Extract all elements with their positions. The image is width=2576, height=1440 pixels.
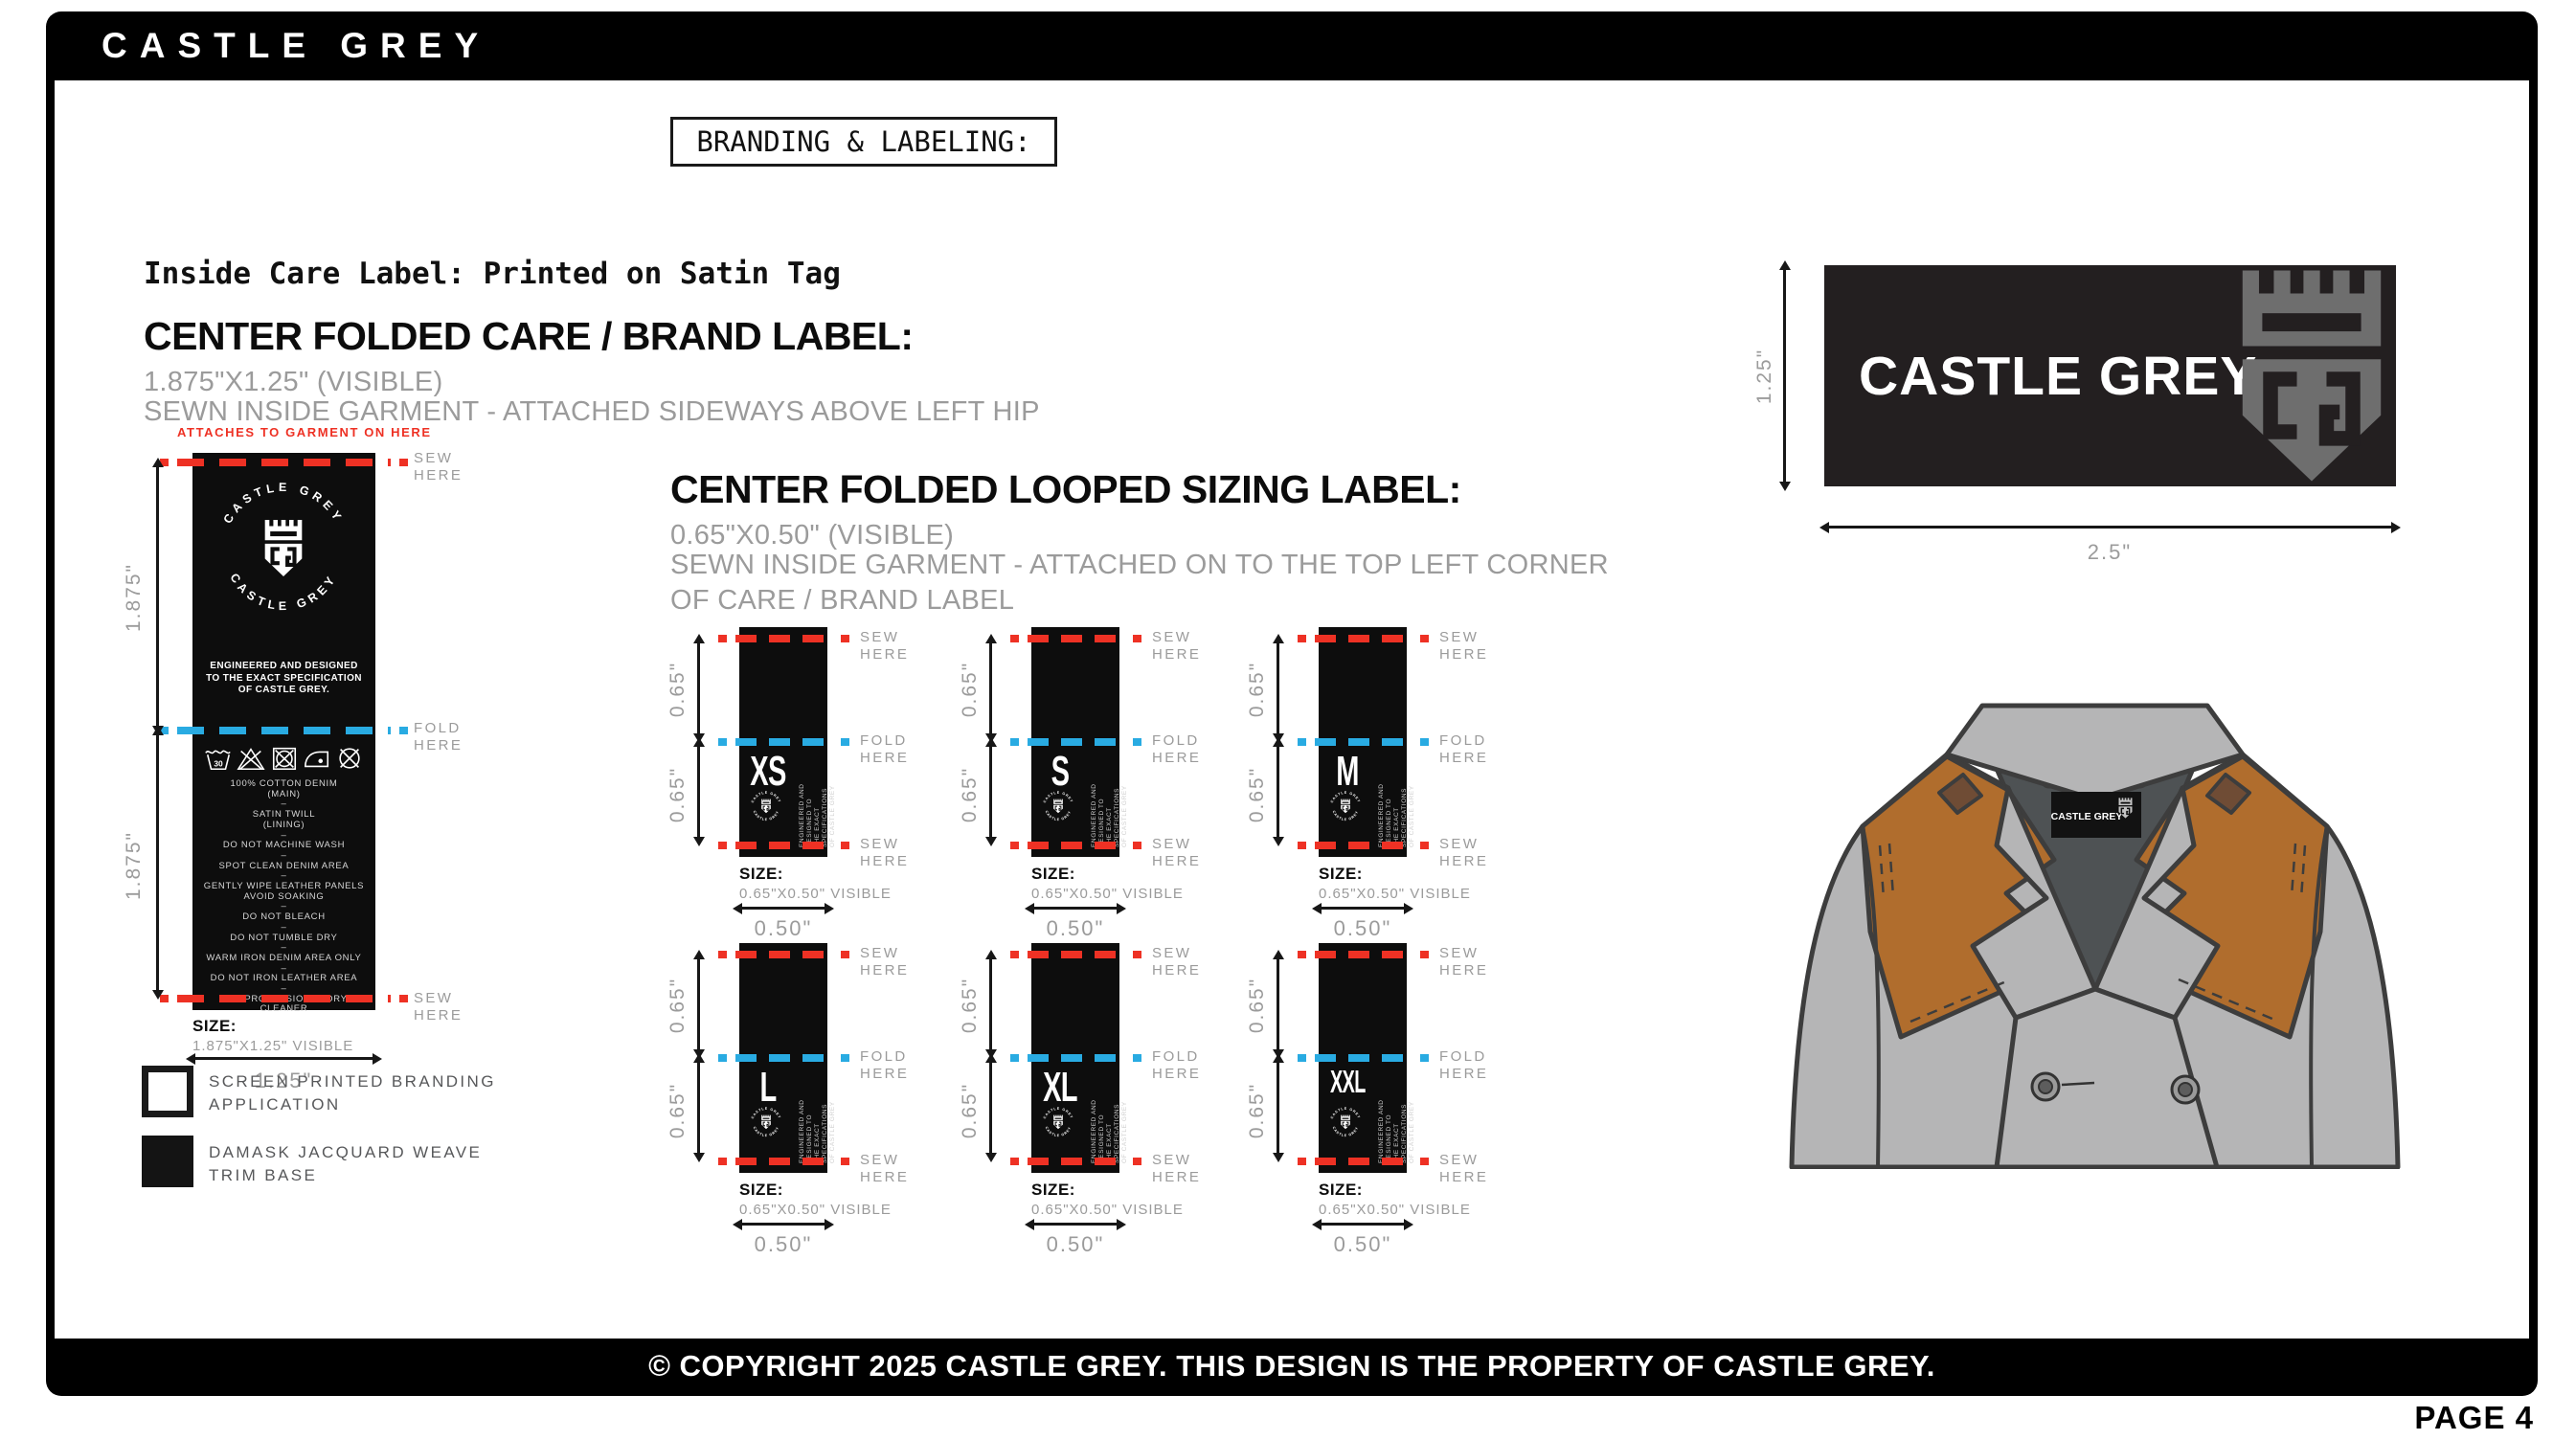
size-caption: SIZE: xyxy=(192,1017,237,1036)
sew-line xyxy=(1315,842,1411,849)
fold-line xyxy=(1315,1054,1411,1062)
size-value: 0.65"X0.50" VISIBLE xyxy=(1031,886,1184,902)
size-value: 0.65"X0.50" VISIBLE xyxy=(739,886,892,902)
size-letter: M xyxy=(1328,748,1367,796)
castle-logo-icon xyxy=(2229,267,2394,484)
sizing-label-diagram: S CASTLE GREY CASTLE GREY ENGINEERED AND… xyxy=(1031,627,1119,857)
sizing-title: CENTER FOLDED LOOPED SIZING LABEL: xyxy=(670,467,1461,512)
micro-text: ENGINEERED AND DESIGNED TO THE EXACT SPE… xyxy=(1378,1066,1416,1163)
dim-label: 0.65" xyxy=(959,649,982,730)
dim-label: 0.65" xyxy=(959,754,982,835)
size-letter: L xyxy=(749,1064,787,1112)
dim-label: 1.875" xyxy=(123,540,146,655)
svg-text:CASTLE GREY: CASTLE GREY xyxy=(221,481,347,526)
sew-line xyxy=(1028,842,1123,849)
micro-text: ENGINEERED AND DESIGNED TO THE EXACT SPE… xyxy=(799,1066,837,1163)
width-dim: 2.5" xyxy=(2014,540,2205,565)
fold-line xyxy=(735,738,831,746)
size-value: 0.65"X0.50" VISIBLE xyxy=(1319,886,1471,902)
width-dim: 0.50" xyxy=(1028,1232,1123,1257)
sew-here-note: SEW HERE xyxy=(414,990,463,1025)
sizing-label-diagram: L CASTLE GREY CASTLE GREY ENGINEERED AND… xyxy=(739,943,827,1173)
sizing-placement: SEWN INSIDE GARMENT - ATTACHED ON TO THE… xyxy=(670,548,1609,619)
fold-here-note: FOLD HERE xyxy=(1439,732,1488,768)
dim-arrow xyxy=(697,1062,700,1154)
dim-arrow xyxy=(1033,1223,1118,1226)
dim-arrow xyxy=(697,642,700,734)
micro-text: ENGINEERED AND DESIGNED TO THE EXACT SPE… xyxy=(1091,750,1129,847)
fold-line xyxy=(1315,738,1411,746)
sew-here-note: SEW HERE xyxy=(1439,945,1488,980)
fold-line xyxy=(735,1054,831,1062)
sizing-label-diagram: M CASTLE GREY CASTLE GREY ENGINEERED AND… xyxy=(1319,627,1407,857)
iron-icon xyxy=(303,745,331,772)
fold-line xyxy=(1028,1054,1123,1062)
dim-arrow xyxy=(1277,1062,1279,1154)
dim-arrow xyxy=(989,746,992,838)
dim-arrow xyxy=(989,642,992,734)
fold-here-note: FOLD HERE xyxy=(1152,732,1201,768)
page-number: PAGE 4 xyxy=(2414,1400,2534,1436)
sew-here-note: SEW HERE xyxy=(860,945,909,980)
attach-note: ATTACHES TO GARMENT ON HERE xyxy=(177,425,432,439)
tech-pack-page: CASTLE GREY © COPYRIGHT 2025 CASTLE GREY… xyxy=(0,0,2576,1440)
dim-arrow xyxy=(989,958,992,1050)
dim-arrow xyxy=(741,907,825,910)
sew-line xyxy=(177,459,391,466)
dim-arrow xyxy=(741,1223,825,1226)
sew-here-note: SEW HERE xyxy=(1152,945,1201,980)
dim-arrow xyxy=(1321,907,1405,910)
size-letter: XXL xyxy=(1330,1064,1365,1100)
handwash-30-icon: 30 xyxy=(204,745,233,772)
sew-line xyxy=(1028,1158,1123,1165)
jacket-neck-label: CASTLE GREY xyxy=(2051,792,2141,838)
do-not-dry-clean-icon xyxy=(335,745,364,772)
brand-label-name: CASTLE GREY xyxy=(1859,265,2257,486)
care-tagline: ENGINEERED AND DESIGNED TO THE EXACT SPE… xyxy=(197,661,371,697)
dim-label: 0.65" xyxy=(959,1070,982,1151)
dim-arrow xyxy=(1828,526,2392,529)
sew-line xyxy=(735,1158,831,1165)
dim-arrow xyxy=(989,1062,992,1154)
sew-line xyxy=(735,842,831,849)
size-caption: SIZE: xyxy=(1319,865,1363,884)
sew-here-note: SEW HERE xyxy=(1439,1152,1488,1187)
dim-arrow xyxy=(156,734,159,991)
sew-line xyxy=(177,995,391,1002)
width-dim: 0.50" xyxy=(1028,916,1123,941)
size-caption: SIZE: xyxy=(1319,1181,1363,1200)
width-dim: 0.50" xyxy=(735,1232,831,1257)
brand-stamp-icon: CASTLE GREY CASTLE GREY xyxy=(1041,790,1075,824)
brand-title: CASTLE GREY xyxy=(46,11,2538,80)
brand-label: CASTLE GREY xyxy=(1824,265,2396,486)
dim-arrow xyxy=(1277,958,1279,1050)
sew-here-note: SEW HERE xyxy=(1152,1152,1201,1187)
dim-arrow xyxy=(697,958,700,1050)
brand-stamp-icon: CASTLE GREY CASTLE GREY xyxy=(1041,1106,1075,1140)
footer-bar: © COPYRIGHT 2025 CASTLE GREY. THIS DESIG… xyxy=(46,1339,2538,1396)
width-dim: 0.50" xyxy=(1315,916,1411,941)
dim-label: 0.65" xyxy=(667,1070,689,1151)
sew-here-note: SEW HERE xyxy=(1152,836,1201,871)
emblem-arc-top: CASTLE GREY xyxy=(221,481,347,526)
care-icons-row: 30 xyxy=(204,745,364,772)
legend-swatch-screen-print xyxy=(142,1066,193,1117)
legend-label: SCREEN PRINTED BRANDING APPLICATION xyxy=(209,1070,496,1116)
sew-line xyxy=(735,635,831,642)
sew-here-note: SEW HERE xyxy=(860,629,909,664)
dim-arrow xyxy=(1783,269,1786,483)
brand-stamp-icon: CASTLE GREY CASTLE GREY xyxy=(1328,1106,1363,1140)
svg-text:30: 30 xyxy=(214,758,223,768)
dim-label: 1.875" xyxy=(123,808,146,923)
care-instructions: 100% COTTON DENIM (MAIN) – SATIN TWILL (… xyxy=(197,779,371,1015)
castle-logo-icon xyxy=(265,520,303,576)
dim-label: 0.65" xyxy=(959,965,982,1046)
dim-label: 0.65" xyxy=(1246,1070,1269,1151)
sew-line xyxy=(1315,635,1411,642)
neck-label-text: CASTLE GREY xyxy=(2051,811,2123,822)
fold-here-note: FOLD HERE xyxy=(860,1048,909,1084)
size-value: 0.65"X0.50" VISIBLE xyxy=(1319,1202,1471,1218)
do-not-tumble-dry-icon xyxy=(270,745,299,772)
size-letter: XL xyxy=(1041,1064,1079,1112)
size-value: 0.65"X0.50" VISIBLE xyxy=(739,1202,892,1218)
sizing-label-diagram: XXL CASTLE GREY CASTLE GREY ENGINEERED A… xyxy=(1319,943,1407,1173)
emblem-arc-bottom: CASTLE GREY xyxy=(227,571,339,613)
dim-label: 0.65" xyxy=(1246,965,1269,1046)
fold-line xyxy=(177,727,391,734)
fold-here-note: FOLD HERE xyxy=(860,732,909,768)
sew-line xyxy=(735,951,831,958)
dim-arrow xyxy=(156,466,159,727)
sizing-label-diagram: XL CASTLE GREY CASTLE GREY ENGINEERED AN… xyxy=(1031,943,1119,1173)
size-letter: S xyxy=(1041,748,1079,796)
dim-label: 0.65" xyxy=(667,965,689,1046)
legend-label: DAMASK JACQUARD WEAVE TRIM BASE xyxy=(209,1141,482,1187)
sew-line xyxy=(1028,951,1123,958)
size-caption: SIZE: xyxy=(739,1181,783,1200)
section-tag-box: BRANDING & LABELING: xyxy=(670,117,1057,167)
width-dim: 0.50" xyxy=(735,916,831,941)
size-caption: SIZE: xyxy=(739,865,783,884)
sew-line xyxy=(1028,635,1123,642)
sew-here-note: SEW HERE xyxy=(1152,629,1201,664)
jacket-illustration: CASTLE GREY xyxy=(1767,702,2418,1169)
micro-text: ENGINEERED AND DESIGNED TO THE EXACT SPE… xyxy=(1091,1066,1129,1163)
dim-label: 0.65" xyxy=(667,649,689,730)
size-caption: SIZE: xyxy=(1031,865,1075,884)
dim-label: 0.65" xyxy=(667,754,689,835)
fold-here-note: FOLD HERE xyxy=(414,720,463,755)
brand-stamp-icon: CASTLE GREY CASTLE GREY xyxy=(1328,790,1363,824)
dim-arrow xyxy=(1321,1223,1405,1226)
dim-label: 0.65" xyxy=(1246,754,1269,835)
legend-swatch-damask-weave xyxy=(142,1136,193,1187)
care-intro: Inside Care Label: Printed on Satin Tag xyxy=(144,257,841,291)
micro-text: ENGINEERED AND DESIGNED TO THE EXACT SPE… xyxy=(799,750,837,847)
header-bar: CASTLE GREY xyxy=(46,11,2538,80)
dim-arrow xyxy=(194,1057,373,1060)
sew-here-note: SEW HERE xyxy=(1439,836,1488,871)
fold-here-note: FOLD HERE xyxy=(1439,1048,1488,1084)
size-value: 0.65"X0.50" VISIBLE xyxy=(1031,1202,1184,1218)
width-dim: 0.50" xyxy=(1315,1232,1411,1257)
fold-here-note: FOLD HERE xyxy=(1152,1048,1201,1084)
sew-here-note: SEW HERE xyxy=(1439,629,1488,664)
size-caption: SIZE: xyxy=(1031,1181,1075,1200)
dim-arrow xyxy=(697,746,700,838)
sizing-label-diagram: XS CASTLE GREY CASTLE GREY ENGINEERED AN… xyxy=(739,627,827,857)
brand-stamp-icon: CASTLE GREY CASTLE GREY xyxy=(749,1106,783,1140)
sew-here-note: SEW HERE xyxy=(860,836,909,871)
castle-grey-emblem-icon: CASTLE GREY CASTLE GREY xyxy=(207,474,360,627)
sew-line xyxy=(1315,1158,1411,1165)
micro-text: ENGINEERED AND DESIGNED TO THE EXACT SPE… xyxy=(1378,750,1416,847)
sew-here-note: SEW HERE xyxy=(860,1152,909,1187)
sew-line xyxy=(1315,951,1411,958)
sew-here-note: SEW HERE xyxy=(414,450,463,485)
dim-label: 0.65" xyxy=(1246,649,1269,730)
dim-arrow xyxy=(1033,907,1118,910)
size-letter: XS xyxy=(749,748,787,796)
size-value: 1.875"X1.25" VISIBLE xyxy=(192,1038,353,1054)
brand-stamp-icon: CASTLE GREY CASTLE GREY xyxy=(749,790,783,824)
svg-text:CASTLE GREY: CASTLE GREY xyxy=(227,571,339,613)
copyright-text: © COPYRIGHT 2025 CASTLE GREY. THIS DESIG… xyxy=(46,1339,2538,1394)
dim-label: 1.25" xyxy=(1753,319,1776,434)
do-not-bleach-icon xyxy=(237,745,265,772)
care-title: CENTER FOLDED CARE / BRAND LABEL: xyxy=(144,314,913,359)
section-tag: BRANDING & LABELING: xyxy=(696,125,1030,158)
dim-arrow xyxy=(1277,642,1279,734)
dim-arrow xyxy=(1277,746,1279,838)
fold-line xyxy=(1028,738,1123,746)
